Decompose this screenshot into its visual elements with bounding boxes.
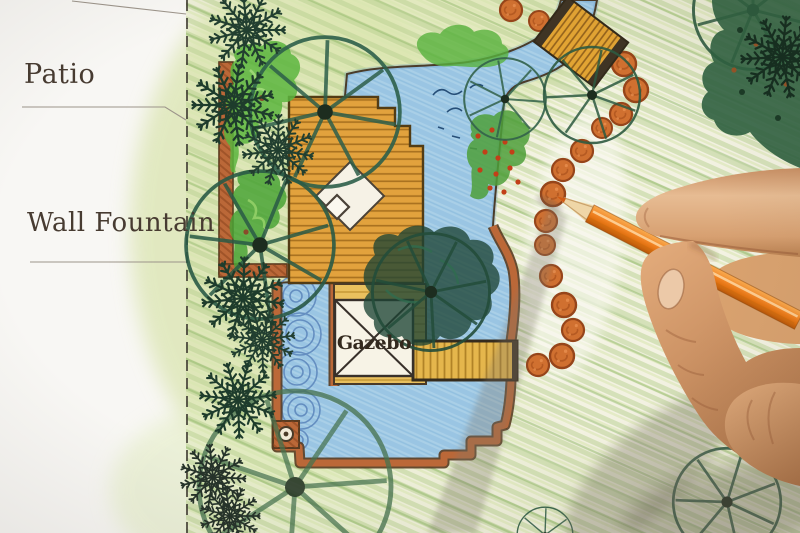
photo-vignette <box>0 0 800 533</box>
plan-drawing <box>0 0 800 533</box>
landscape-plan-photo: Patio Wall Fountain Gazebo <box>0 0 800 533</box>
label-wall-fountain: Wall Fountain <box>27 210 215 236</box>
label-gazebo: Gazebo <box>335 334 413 353</box>
label-patio: Patio <box>24 61 95 88</box>
